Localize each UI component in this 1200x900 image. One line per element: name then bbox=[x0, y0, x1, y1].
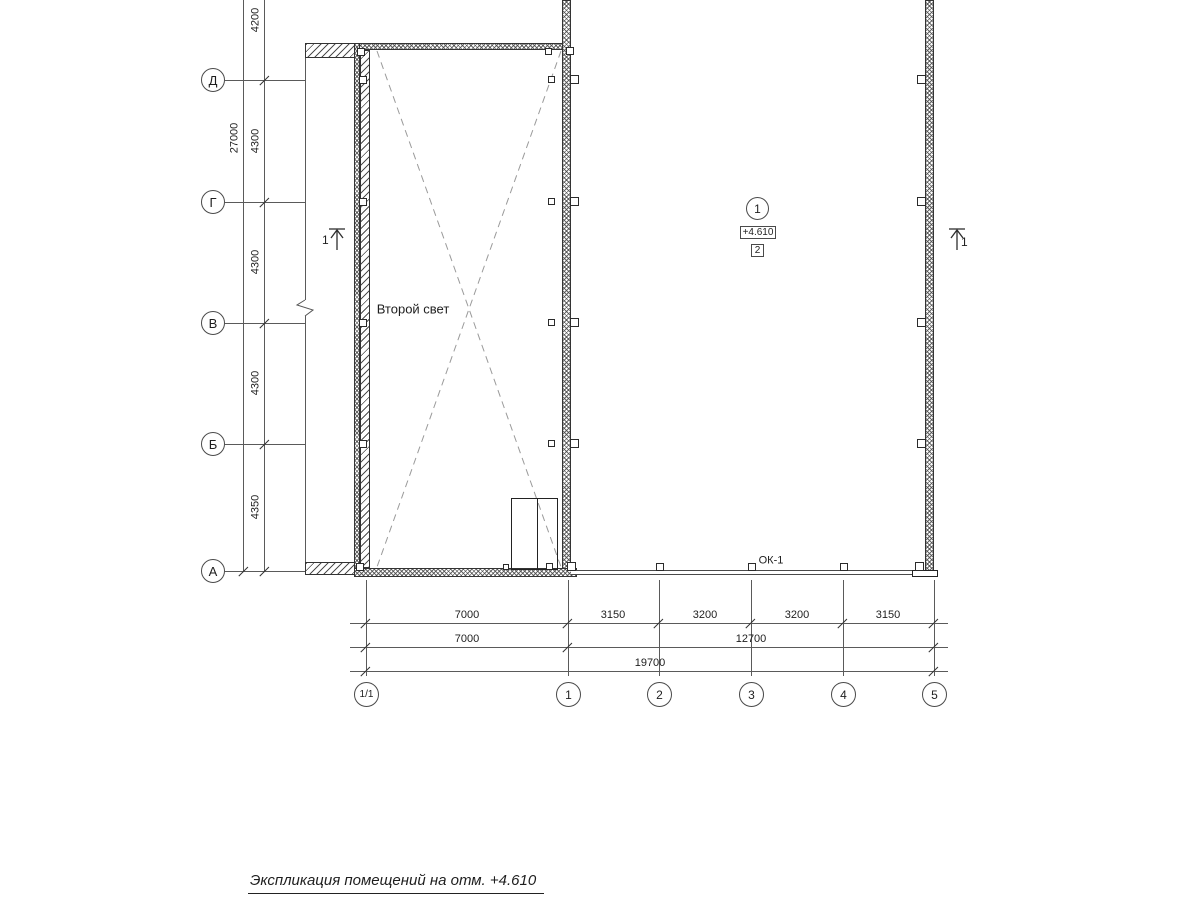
bottom-dim-line-3 bbox=[350, 671, 948, 672]
column-square bbox=[570, 197, 579, 206]
column-square bbox=[917, 197, 926, 206]
grid-col-1-1: 1/1 bbox=[354, 682, 379, 707]
dim-3150-b: 3150 bbox=[876, 610, 900, 621]
floor-plan-drawing: 27000 4200 4300 4300 4300 4350 Д Г В Б А bbox=[0, 0, 1200, 900]
column-square bbox=[840, 563, 848, 571]
ext-line-col-4 bbox=[843, 580, 844, 676]
column-square bbox=[359, 440, 367, 448]
column-square bbox=[359, 198, 367, 206]
column-square bbox=[548, 198, 555, 205]
column-square bbox=[503, 564, 509, 570]
room-zone-tag: 2 bbox=[751, 244, 764, 257]
column-square bbox=[570, 439, 579, 448]
dim-12700: 12700 bbox=[736, 634, 767, 645]
drawing-overlay bbox=[0, 0, 1200, 900]
column-square bbox=[567, 562, 576, 571]
column-square bbox=[356, 563, 364, 571]
bottom-dim-line-1 bbox=[350, 623, 948, 624]
section-label-left: 1 bbox=[322, 234, 329, 246]
column-square bbox=[359, 319, 367, 327]
ext-line-col-1 bbox=[568, 580, 569, 676]
column-square bbox=[748, 563, 756, 571]
column-square bbox=[566, 47, 574, 55]
dim-3200-b: 3200 bbox=[785, 610, 809, 621]
section-arrow-left bbox=[329, 229, 345, 250]
window-tag-label: ОК-1 bbox=[757, 556, 786, 567]
column-square bbox=[570, 75, 579, 84]
bottom-dim-line-2 bbox=[350, 647, 948, 648]
column-square bbox=[359, 76, 367, 84]
column-square bbox=[915, 562, 924, 571]
dim-7000-b: 7000 bbox=[455, 634, 479, 645]
dim-3200-a: 3200 bbox=[693, 610, 717, 621]
column-square bbox=[548, 76, 555, 83]
sheet-title: Экспликация помещений на отм. +4.610 bbox=[248, 872, 544, 894]
grid-col-1: 1 bbox=[556, 682, 581, 707]
grid-col-3: 3 bbox=[739, 682, 764, 707]
dim-3150-a: 3150 bbox=[601, 610, 625, 621]
column-square bbox=[570, 318, 579, 327]
grid-col-5: 5 bbox=[922, 682, 947, 707]
door-leaf-divider bbox=[537, 498, 538, 570]
dim-19700: 19700 bbox=[635, 658, 666, 669]
break-symbol bbox=[297, 300, 313, 316]
room-number-bubble: 1 bbox=[746, 197, 769, 220]
column-square bbox=[548, 440, 555, 447]
column-square bbox=[917, 318, 926, 327]
ext-line-col-5 bbox=[934, 580, 935, 676]
column-square bbox=[548, 319, 555, 326]
section-label-right: 1 bbox=[961, 236, 968, 248]
column-square bbox=[656, 563, 664, 571]
column-square bbox=[357, 48, 365, 56]
grid-col-4: 4 bbox=[831, 682, 856, 707]
column-square bbox=[917, 75, 926, 84]
column-square bbox=[917, 439, 926, 448]
second-light-label: Второй свет bbox=[377, 303, 450, 316]
dim-7000-a: 7000 bbox=[455, 610, 479, 621]
room-elevation-tag: +4.610 bbox=[740, 226, 776, 239]
ext-line-col-1-1 bbox=[366, 580, 367, 676]
ext-line-col-3 bbox=[751, 580, 752, 676]
column-square bbox=[545, 48, 552, 55]
grid-col-2: 2 bbox=[647, 682, 672, 707]
door-opening bbox=[511, 498, 558, 570]
